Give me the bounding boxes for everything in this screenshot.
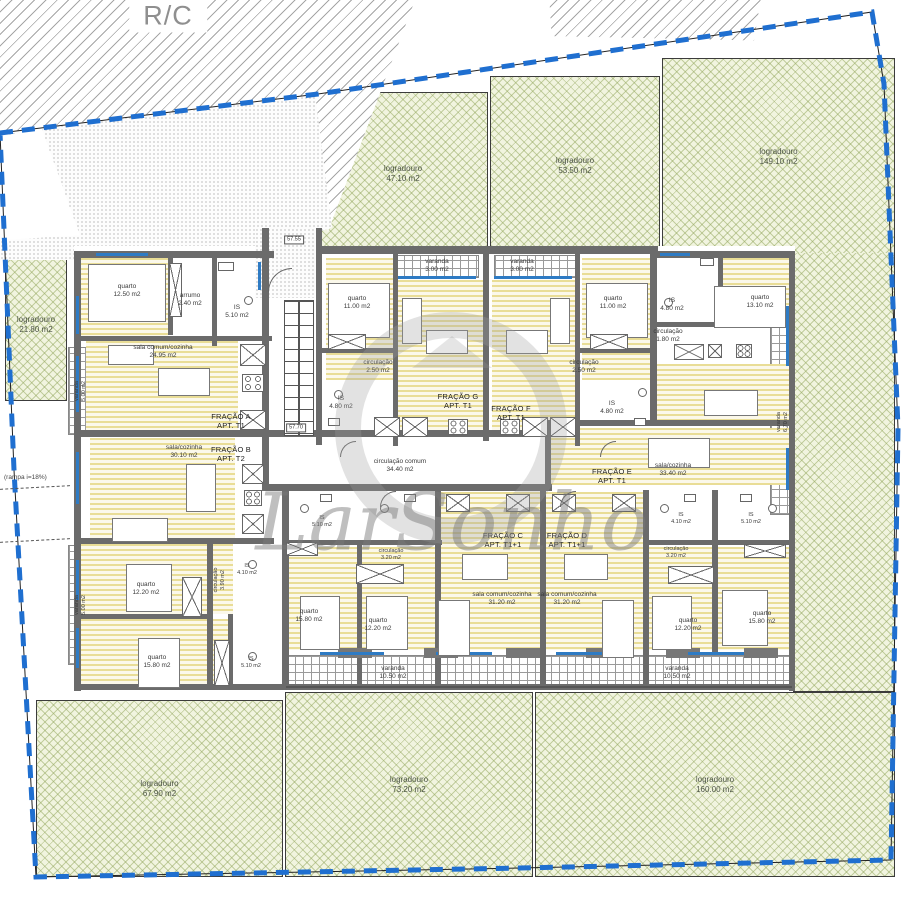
wall-segment: [316, 228, 322, 445]
room-label: quarto11.00 m2: [344, 295, 371, 311]
room-label: quarto12.20 m2: [674, 617, 701, 633]
stove-icon: [448, 419, 468, 435]
wall-segment: [74, 430, 274, 437]
corridor-label: circulação comum34.40 m2: [374, 458, 426, 474]
balcony-parapet: [286, 686, 792, 688]
wardrobe-icon: [744, 544, 786, 558]
wardrobe-icon: [668, 566, 714, 584]
dining-table: [462, 554, 508, 580]
fraction-label-e: FRAÇÃO EAPT. T1: [592, 467, 632, 485]
sofa: [402, 298, 422, 344]
room-label: sala/cozinha33.40 m2: [655, 462, 691, 478]
dining-table: [426, 330, 468, 354]
sink-icon: [328, 418, 340, 426]
room-label: circulação2.50 m2: [569, 359, 598, 375]
dining-table: [158, 368, 210, 396]
sink-icon: [740, 494, 752, 502]
kitchen-counter-icon: [402, 417, 428, 437]
wall-segment: [545, 420, 795, 426]
window: [786, 306, 789, 366]
room-label: quarto15.80 m2: [748, 610, 775, 626]
wardrobe-icon: [214, 640, 230, 686]
room-label: circulação1.80 m2: [653, 328, 682, 344]
sofa: [550, 298, 570, 344]
room-label: IS4.80 m2: [329, 395, 353, 411]
wall-segment: [652, 322, 722, 327]
sink-icon: [218, 262, 234, 271]
room-label: arrumo2.40 m2: [178, 292, 202, 308]
stove-icon: [736, 344, 752, 358]
wall-segment: [789, 251, 795, 691]
room-label: circulação3.90 m2: [213, 568, 227, 593]
fraction-label-b: FRAÇÃO BAPT. T2: [211, 445, 251, 463]
room-label: sala comum/cozinha24.95 m2: [133, 344, 192, 360]
wall-segment: [212, 251, 217, 346]
room-label: IS5.10 m2: [225, 304, 249, 320]
room-label: varanda3.00 m2: [425, 258, 449, 274]
room-label: quarto13.10 m2: [746, 294, 773, 310]
sink-icon: [684, 494, 696, 502]
toilet-icon: [638, 388, 647, 397]
room-label: quarto15.80 m2: [295, 608, 322, 624]
room-label: varanda5.00 m2: [74, 595, 88, 615]
room-label: quarto11.00 m2: [600, 295, 627, 311]
kitchen-counter-icon: [708, 344, 722, 358]
wall-segment: [262, 484, 552, 491]
dining-table: [564, 554, 608, 580]
floor-plan-canvas: R/C logradouro47.10 m2 logradouro53.50 m…: [0, 0, 904, 916]
wardrobe-icon: [286, 542, 318, 556]
sink-icon: [320, 494, 332, 502]
room-label: varanda6.70 m2: [776, 412, 790, 432]
wardrobe-icon: [182, 577, 202, 617]
sink-icon: [404, 494, 416, 502]
room-label: circulação3.20 m2: [379, 548, 404, 562]
wall-segment: [483, 251, 489, 441]
window: [96, 253, 148, 256]
wardrobe-icon: [590, 334, 628, 350]
dining-table: [186, 464, 216, 512]
window: [258, 262, 261, 290]
sink-icon: [634, 418, 646, 426]
room-label: circulação2.50 m2: [363, 359, 392, 375]
room-label: quarto12.20 m2: [364, 617, 391, 633]
wall-segment: [540, 490, 546, 686]
window: [786, 448, 789, 490]
sofa: [112, 518, 168, 542]
level-mark: 57.70: [286, 423, 306, 432]
dining-table: [704, 390, 758, 416]
window: [494, 276, 572, 279]
kitchen-counter-icon: [550, 417, 576, 437]
sink-icon: [700, 258, 714, 266]
wall-segment: [643, 490, 649, 686]
room-label: sala/cozinha30.10 m2: [166, 444, 202, 460]
room-label: IS5.10 m2: [741, 512, 761, 526]
wall-segment: [282, 490, 289, 686]
room-label: sala comum/cozinha31.20 m2: [472, 591, 531, 607]
kitchen-counter-icon: [612, 494, 636, 512]
fraction-label-a: FRAÇÃO AAPT. T1: [211, 412, 251, 430]
room-label: varanda10.50 m2: [663, 665, 690, 681]
fraction-label-f: FRAÇÃO FAPT. T1: [491, 404, 531, 422]
toilet-icon: [660, 504, 669, 513]
wall-pillar: [506, 648, 540, 658]
room-label: circulação3.20 m2: [664, 546, 689, 560]
room-label: varanda10.50 m2: [379, 665, 406, 681]
window: [320, 652, 384, 655]
stove-icon: [244, 490, 262, 506]
stove-icon: [242, 374, 264, 392]
room-label: IS4.80 m2: [660, 297, 684, 313]
ramp-note: (rampa i=18%): [4, 474, 47, 481]
wall-segment: [74, 336, 172, 341]
wall-pillar: [744, 648, 778, 658]
kitchen-counter-icon: [242, 514, 264, 534]
room-label: IS4.80 m2: [600, 400, 624, 416]
wall-segment: [74, 538, 274, 544]
room-label: quarto12.20 m2: [132, 581, 159, 597]
fraction-label-c: FRAÇÃO CAPT. T1+1: [483, 531, 523, 549]
wardrobe-icon: [328, 334, 366, 350]
wardrobe-icon: [169, 263, 182, 317]
kitchen-counter-icon: [446, 494, 470, 512]
window: [76, 296, 79, 334]
window: [398, 276, 476, 279]
sofa: [438, 600, 470, 656]
stair-rail: [298, 300, 300, 436]
wall-segment: [168, 336, 272, 341]
window: [688, 652, 744, 655]
level-mark: 57.55: [284, 235, 304, 244]
window: [76, 452, 79, 504]
room-label: varanda3.00 m2: [510, 258, 534, 274]
floor-title: R/C: [129, 0, 207, 33]
room-label: IS4.10 m2: [671, 512, 691, 526]
room-label: IS4.10 m2: [237, 563, 257, 577]
room-label: quarto12.50 m2: [113, 283, 140, 299]
balcony-north-2: [494, 255, 578, 278]
room-label: IS5.10 m2: [241, 656, 261, 670]
toilet-icon: [768, 504, 777, 513]
kitchen-counter-icon: [240, 344, 266, 366]
room-label: IS5.10 m2: [312, 515, 332, 529]
fraction-label-d: FRAÇÃO DAPT. T1+1: [547, 531, 587, 549]
sofa: [602, 600, 634, 658]
fraction-label-g: FRAÇÃO GAPT. T1: [438, 392, 479, 410]
kitchen-counter-icon: [242, 464, 264, 484]
room-label: sala comum/cozinha31.20 m2: [537, 591, 596, 607]
kitchen-counter-icon: [506, 494, 530, 512]
room-label: varanda5.00 m2: [74, 381, 88, 401]
wardrobe-icon: [356, 564, 404, 584]
toilet-icon: [300, 504, 309, 513]
wall-segment: [207, 538, 213, 690]
window: [660, 253, 690, 256]
window: [76, 628, 79, 668]
dining-table: [506, 330, 548, 354]
kitchen-counter-icon: [674, 344, 704, 360]
kitchen-counter-icon: [374, 417, 400, 437]
room-label: quarto15.80 m2: [143, 654, 170, 670]
